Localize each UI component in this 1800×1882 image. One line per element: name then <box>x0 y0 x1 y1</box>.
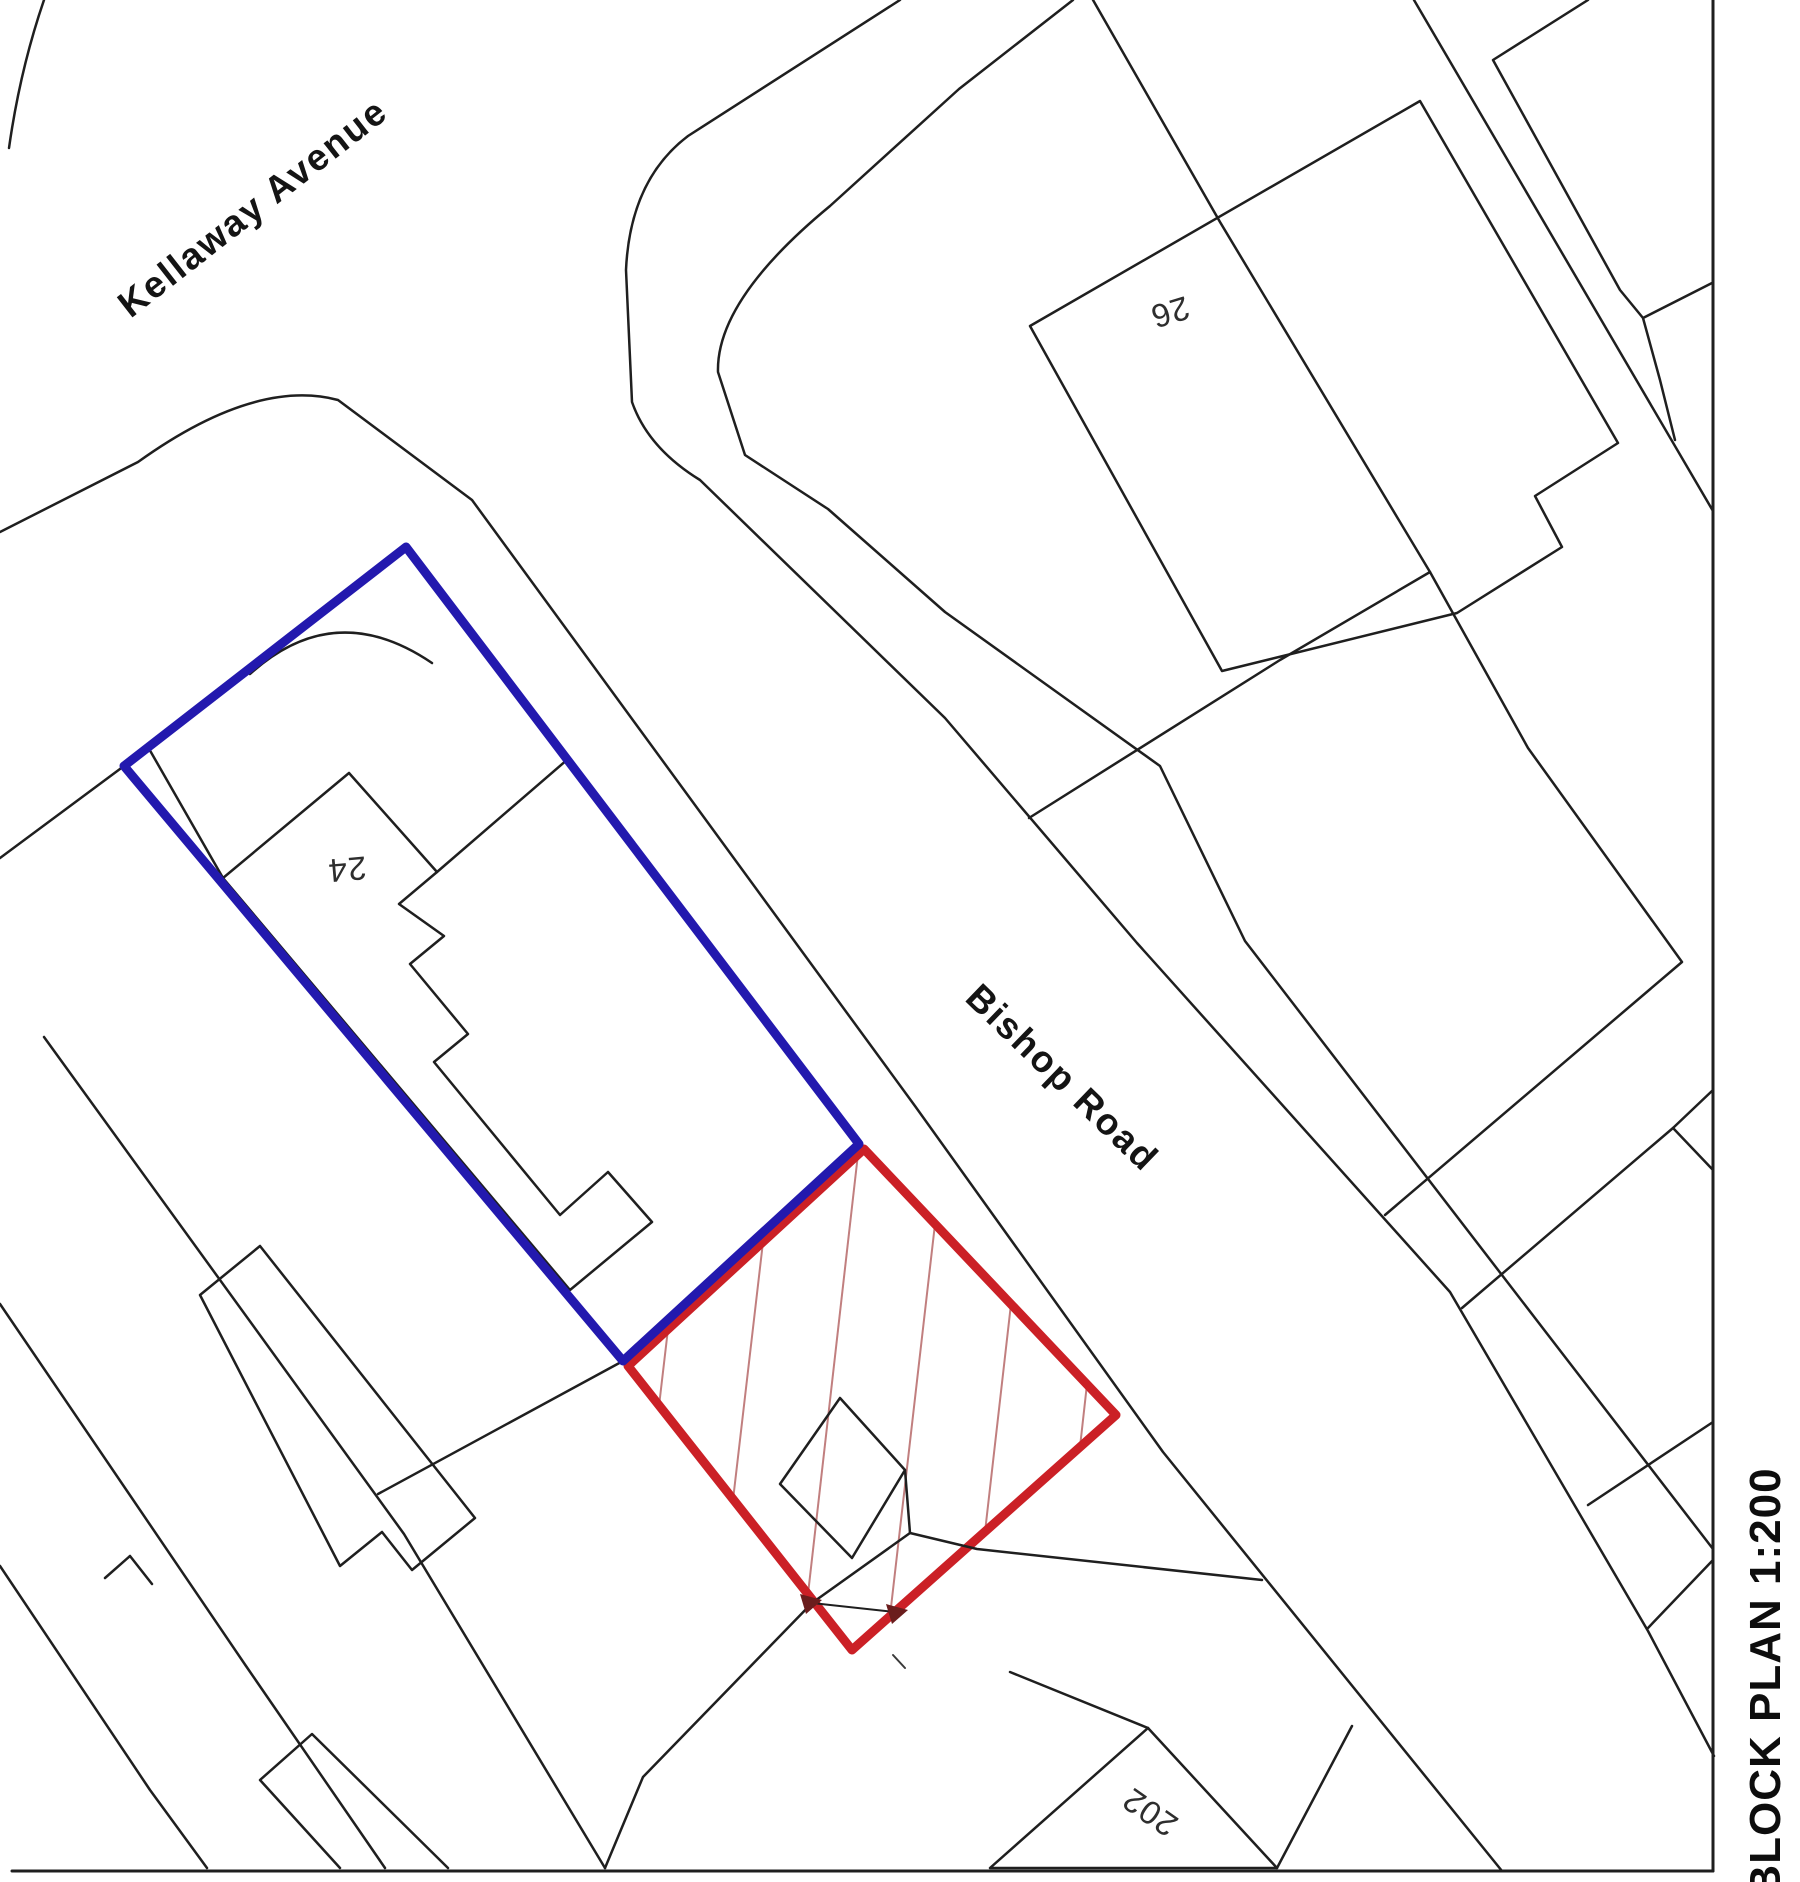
boundary-branch-east <box>905 1470 1262 1580</box>
blue-nw-edge-extension <box>0 766 124 858</box>
kerb-kellaway-bishop <box>0 395 1502 1871</box>
building-26-outline <box>1030 101 1618 671</box>
plot-number-24: 24 <box>326 848 368 889</box>
plot-boundary-line-a <box>1093 0 1682 1215</box>
plot-202-right-boundary <box>1277 1726 1352 1868</box>
terrace-step-detail <box>105 1556 152 1584</box>
corner-arc-top-left <box>9 0 44 148</box>
building-top-right-outline <box>1493 0 1712 440</box>
fence-ne-24 <box>437 759 568 872</box>
plot-boundary-east-2 <box>1673 1128 1713 1170</box>
hatch-line-2 <box>733 1242 763 1500</box>
terrace-boundary-2 <box>0 1304 385 1868</box>
garden-arc-24 <box>250 633 432 674</box>
plan-title: BLOCK PLAN 1:200 <box>1741 1467 1791 1882</box>
hatch-line-4 <box>890 1224 935 1616</box>
hatch-line-5 <box>985 1304 1011 1532</box>
plot-boundary-line-a-branch <box>1029 572 1430 818</box>
terrace-boundary-1 <box>44 1037 605 1868</box>
plot-boundary-east-3 <box>1588 1422 1713 1505</box>
corner-plot-inner-line <box>718 0 1713 1549</box>
building-24-outline <box>223 773 652 1290</box>
terrace-boundary-3 <box>0 1566 207 1868</box>
red-site-boundary <box>628 1149 1116 1650</box>
plot-202-left-boundary <box>1010 1672 1148 1728</box>
terrace-building-2 <box>260 1734 448 1868</box>
dimension-tick <box>893 1655 905 1668</box>
plot-line-south-of-blue <box>378 1361 623 1494</box>
plot-boundary-east-4 <box>1648 1560 1713 1628</box>
map-linework <box>0 0 1800 1882</box>
terrace-building-1 <box>200 1246 475 1570</box>
plot-boundary-ne-parallel <box>1414 0 1713 511</box>
hatch-line-3 <box>808 1154 858 1594</box>
block-plan-map: Kellaway Avenue Bishop Road 26 24 202 BL… <box>0 0 1800 1882</box>
boundary-branch-southwest <box>605 1533 910 1868</box>
blue-property-boundary <box>124 547 859 1361</box>
plot-boundary-east-1 <box>1462 1090 1713 1308</box>
building-in-red-site <box>780 1398 905 1558</box>
